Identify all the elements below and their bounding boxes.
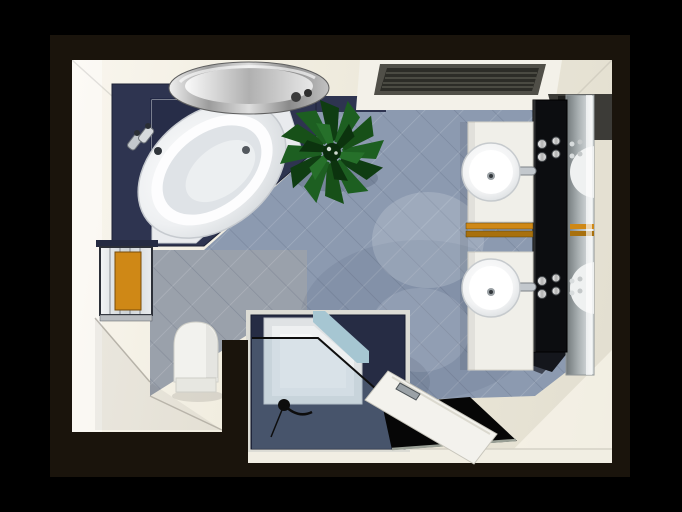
bathroom-render [0, 0, 682, 512]
window-sill [100, 315, 152, 321]
window-lintel [96, 240, 158, 247]
window [100, 247, 152, 321]
washbasin-top [462, 143, 520, 201]
toilet [172, 322, 224, 402]
screenshot-canvas [0, 0, 682, 512]
bathtub-drain [242, 146, 250, 154]
mirror-edge-highlight [586, 95, 592, 375]
washbasin-bottom [462, 259, 520, 317]
ceiling-vent [374, 64, 546, 95]
notch-wall-strip [222, 340, 248, 463]
corner-line [576, 60, 612, 96]
notch-bottom-left [50, 432, 222, 463]
chrome-side-table [169, 62, 329, 114]
window-towel [115, 252, 141, 310]
vanity-panel [533, 100, 567, 352]
mirror-reflections [570, 140, 623, 315]
toilet-base [176, 378, 216, 392]
left-wall [96, 240, 158, 321]
